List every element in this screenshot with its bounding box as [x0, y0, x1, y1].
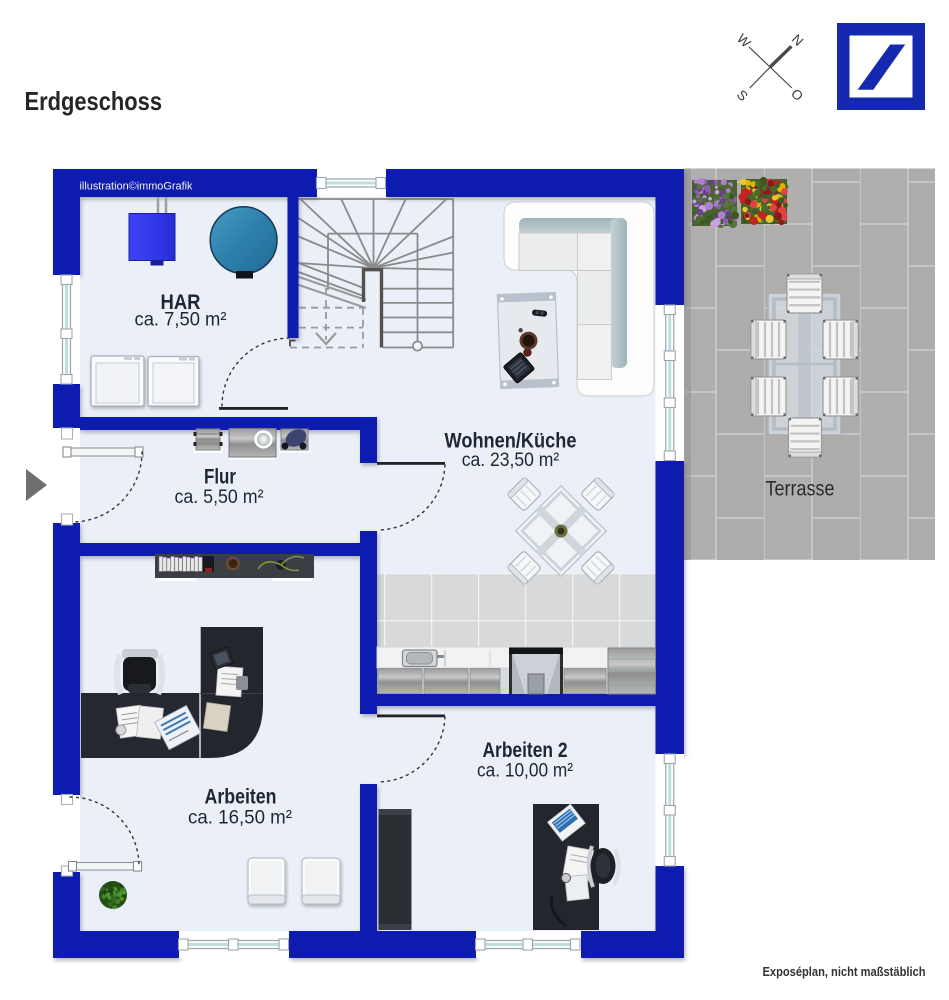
svg-text:W: W — [734, 31, 754, 51]
svg-text:ca. 16,50 m²: ca. 16,50 m² — [188, 808, 292, 829]
svg-text:O: O — [788, 86, 806, 104]
svg-text:illustration©immoGrafik: illustration©immoGrafik — [80, 181, 193, 193]
svg-text:ca. 23,50 m²: ca. 23,50 m² — [462, 450, 560, 471]
svg-text:Exposéplan, nicht maßstäblich: Exposéplan, nicht maßstäblich — [763, 964, 926, 979]
svg-text:Arbeiten 2: Arbeiten 2 — [483, 739, 568, 762]
svg-text:Flur: Flur — [204, 466, 236, 489]
svg-text:ca. 10,00 m²: ca. 10,00 m² — [477, 761, 573, 782]
svg-text:ca. 7,50 m²: ca. 7,50 m² — [135, 310, 227, 331]
svg-text:S: S — [734, 87, 751, 104]
svg-text:Erdgeschoss: Erdgeschoss — [25, 86, 163, 116]
svg-text:Terrasse: Terrasse — [766, 478, 835, 501]
svg-text:Arbeiten: Arbeiten — [205, 786, 277, 809]
svg-text:N: N — [789, 31, 807, 49]
svg-text:ca. 5,50 m²: ca. 5,50 m² — [175, 487, 264, 508]
